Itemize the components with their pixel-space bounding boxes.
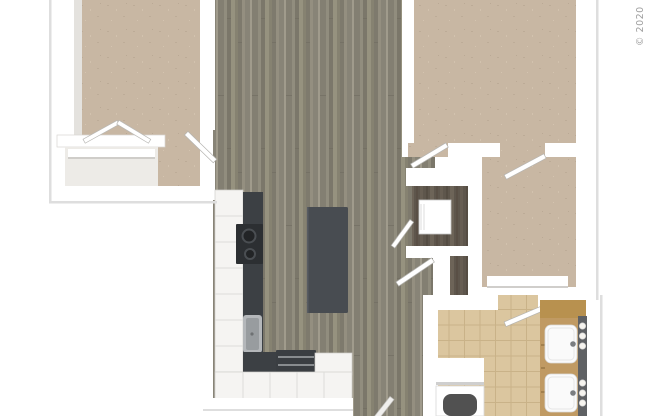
bathroom-right-shadow	[600, 295, 603, 416]
bath-shelf	[436, 358, 484, 384]
burner-1	[243, 230, 256, 243]
bedroom1-closet-shelf	[68, 149, 155, 157]
bathroom-right-wall	[586, 295, 600, 416]
bedroom1-right-wall-upper	[200, 0, 215, 130]
bedroom2-left-wall	[402, 0, 414, 145]
bedroom2-carpet	[414, 0, 576, 145]
bedroom1-bottom-wall	[52, 186, 215, 200]
walkin-left-wall	[468, 143, 482, 300]
bath-shelf-shadow	[436, 382, 484, 385]
bottom-wall-mask	[203, 411, 353, 416]
bedroom1-closet-shelf-shadow	[68, 157, 155, 159]
kitchen-cabinets-left	[215, 190, 243, 403]
island-edge-highlight	[307, 207, 309, 313]
walkin-bench	[487, 276, 568, 287]
refrigerator	[276, 350, 316, 374]
walkin-door-opening	[500, 143, 545, 157]
left-bottom-shadow	[49, 201, 217, 204]
walkin-bench-shadow	[487, 286, 568, 288]
kitchen-counter-bottom	[243, 352, 279, 372]
copyright-watermark: © 2020	[635, 6, 646, 46]
walk-in-closet	[468, 143, 590, 300]
bathroom	[423, 295, 600, 416]
linen-floor	[450, 256, 468, 296]
kitchen-island	[307, 207, 348, 313]
faucet-1	[570, 341, 576, 347]
bathroom-top-wall-left	[438, 295, 498, 310]
faucet-2	[570, 390, 576, 396]
sink-drain	[250, 332, 253, 335]
bottom-outer-wall	[203, 398, 353, 409]
laundry-top-wall	[406, 168, 468, 186]
walkin-carpet	[482, 157, 576, 287]
bedroom2-bottom-wall-left	[402, 143, 408, 157]
bedroom-1	[52, 0, 217, 200]
bathroom-door-opening	[498, 295, 538, 310]
bathtub-interior	[443, 394, 477, 416]
burner-2	[245, 249, 255, 259]
right-outer-shadow	[596, 0, 599, 300]
left-outer-shadow	[49, 0, 52, 203]
floorplan-image: © 2020	[0, 0, 652, 416]
floorplan-svg: © 2020	[0, 0, 652, 416]
